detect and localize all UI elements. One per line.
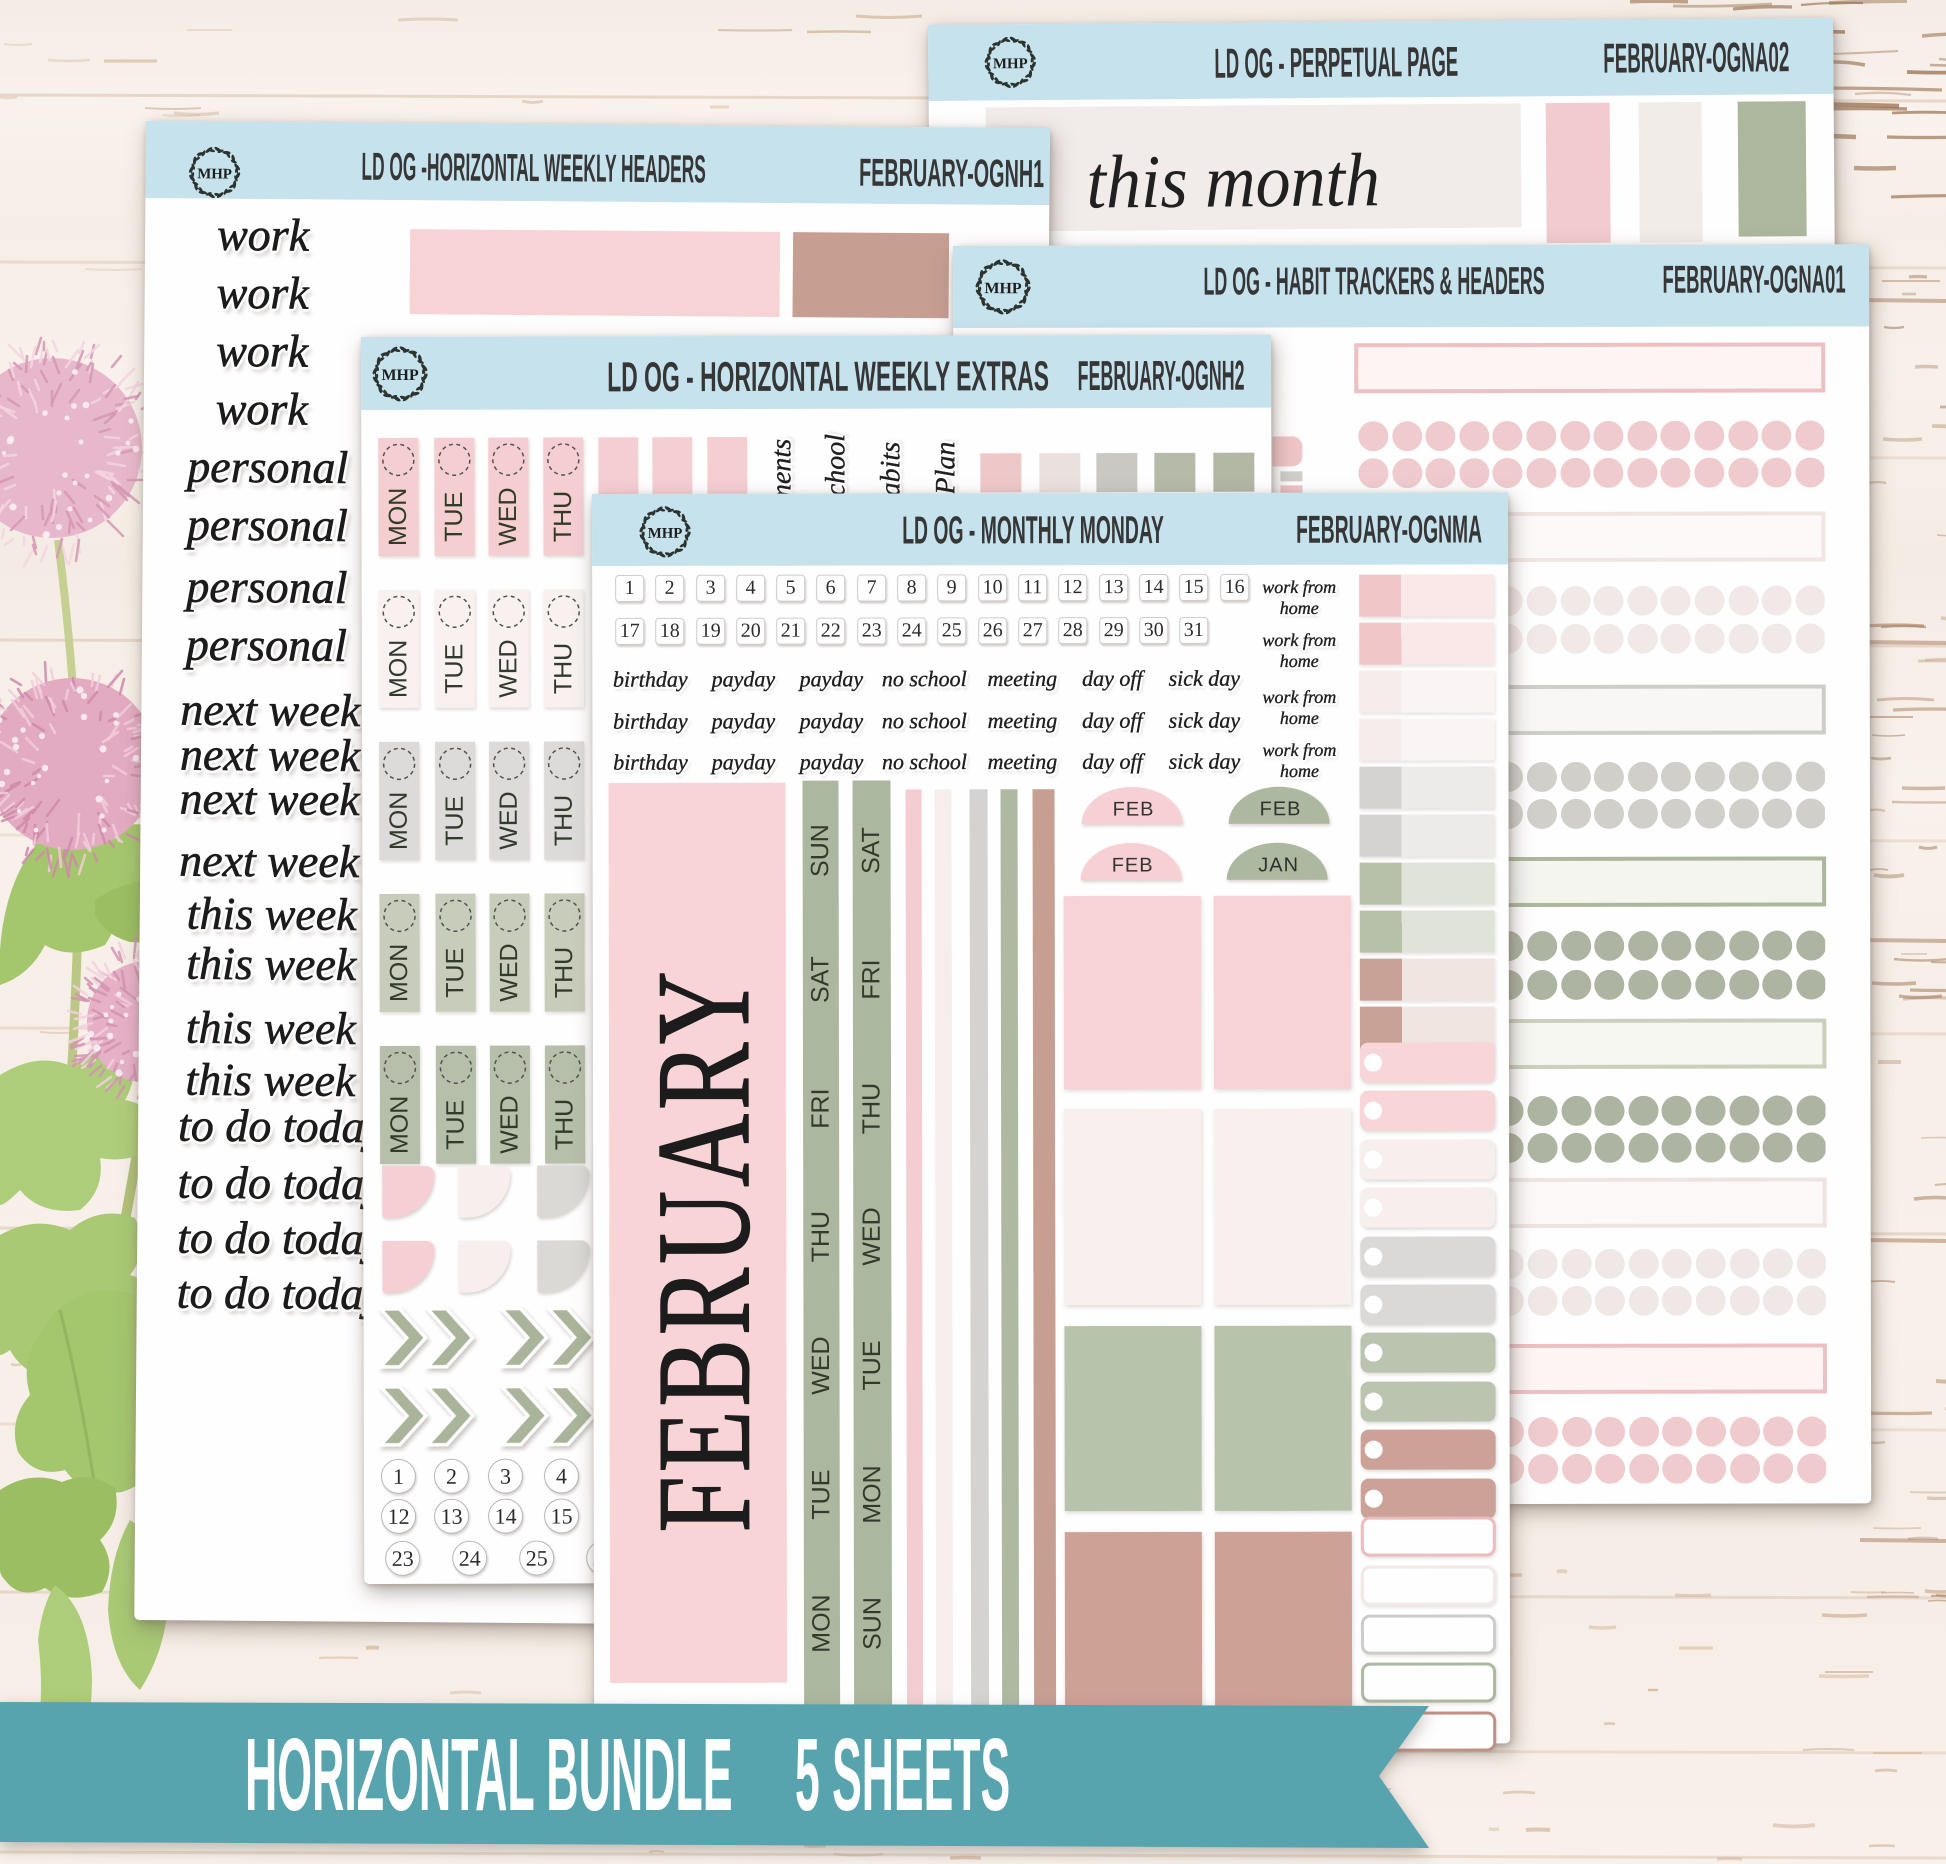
svg-text:MHP: MHP — [993, 56, 1028, 72]
svg-text:MHP: MHP — [648, 526, 683, 542]
svg-text:MHP: MHP — [382, 367, 419, 384]
